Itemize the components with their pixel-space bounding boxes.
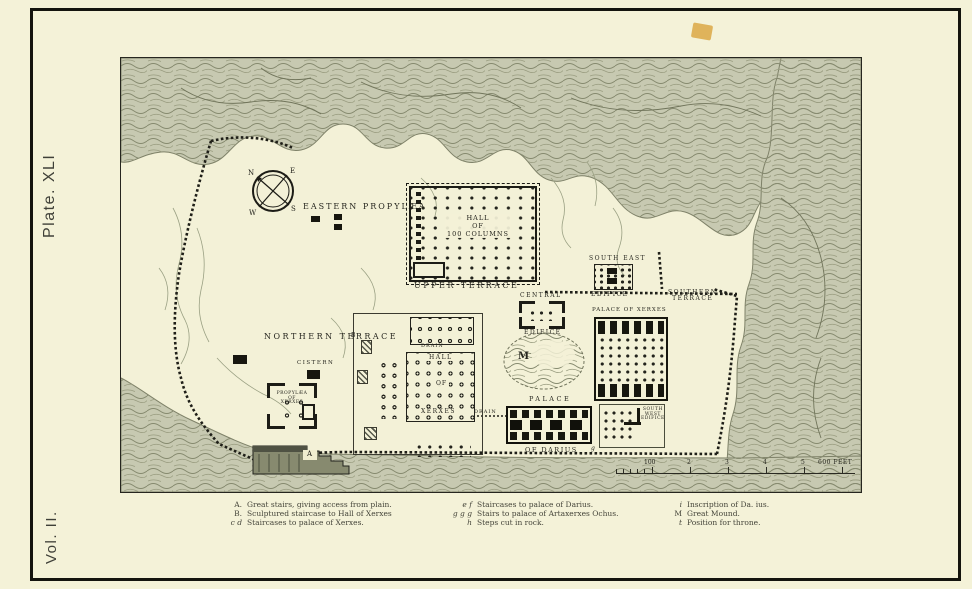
- legend-column-3: i Inscription of Da. ius. M Great Mound.…: [670, 500, 840, 527]
- propylaea-annex: [302, 404, 315, 420]
- south-east-edifice-label-bottom: EDIFICE: [591, 292, 629, 298]
- legend-column-1: A. Great stairs, giving access from plai…: [226, 500, 441, 527]
- plate-number-label: Plate. XLI: [42, 154, 59, 238]
- scale-end-label: 600 FEET: [818, 460, 852, 466]
- palace-of-xerxes: [594, 317, 668, 401]
- legend-key: M: [670, 509, 682, 518]
- legend-key: A.: [226, 500, 242, 509]
- stairs-a-letter: A: [307, 451, 312, 458]
- stairs-b-flight: [357, 370, 368, 384]
- legend-item: h Steps cut in rock.: [448, 518, 658, 527]
- stairs-g-letter: g: [591, 446, 595, 452]
- central-edifice-label-top: CENTRAL: [520, 293, 562, 299]
- palace-of-darius: [506, 406, 592, 444]
- central-edifice-columns: [528, 309, 556, 321]
- propylaea-of-xerxes: PROPYLÆA OF XERXES: [267, 383, 317, 429]
- upper-terrace-label: UPPER TERRACE: [414, 282, 519, 290]
- palace-room-band: [598, 384, 664, 397]
- west-edge-structure: [233, 355, 247, 364]
- hall-100-label: HALL OF 100 COLUMNS: [445, 214, 511, 238]
- compass-e: E: [290, 167, 295, 175]
- volume-label: Vol. II.: [44, 510, 60, 564]
- legend-text: Great Mound.: [687, 509, 740, 518]
- propylaea-pillar: [334, 224, 342, 230]
- legend-text: Staircases to palace of Xerxes.: [247, 518, 364, 527]
- drain-north-label: DRAIN: [421, 344, 444, 349]
- palace-of-xerxes-label: PALACE OF XERXES: [592, 308, 667, 314]
- southern-terrace-label: SOUTHERN TERRACE: [668, 290, 717, 303]
- darius-central-rooms: [510, 420, 588, 431]
- great-mound-label: M: [518, 352, 529, 363]
- scale-tick-label: 3: [725, 460, 729, 466]
- palace-room-band: [598, 321, 664, 334]
- hall-xerxes-label-1: HALL: [427, 355, 455, 361]
- legend-item: i Inscription of Da. ius.: [670, 500, 840, 509]
- legend-item: M Great Mound.: [670, 509, 840, 518]
- south-west-edifice: SOUTH WEST EDIFICE: [599, 404, 665, 448]
- legend-key: g g g: [448, 509, 472, 518]
- hall-xerxes-label-3: XERXES: [419, 409, 458, 415]
- legend-key: e f: [448, 500, 472, 509]
- legend-item: B. Sculptured staircase to Hall of Xerxe…: [226, 509, 441, 518]
- sw-columns: [602, 409, 636, 443]
- legend-key: t: [670, 518, 682, 527]
- compass-s: S: [291, 205, 296, 213]
- xerxes-north-portico: [410, 317, 474, 345]
- edifice-room: [607, 278, 617, 284]
- darius-room-band: [510, 432, 588, 440]
- xerxes-south-colonnade: [411, 440, 471, 457]
- legend-text: Great stairs, giving access from plain.: [247, 500, 392, 509]
- legend-key: i: [670, 500, 682, 509]
- legend-text: Position for throne.: [687, 518, 761, 527]
- south-west-edifice-label: SOUTH WEST EDIFICE: [641, 408, 665, 422]
- legend-item: e f Staircases to palace of Darius.: [448, 500, 658, 509]
- scale-bar: 100 2 3 4 5 600 FEET: [616, 460, 861, 476]
- hall-of-100-columns: HALL OF 100 COLUMNS: [409, 186, 537, 282]
- legend-text: Inscription of Da. ius.: [687, 500, 769, 509]
- cistern: [307, 370, 320, 379]
- central-edifice: [519, 301, 565, 329]
- scale-tick-label: 5: [801, 460, 805, 466]
- south-east-edifice: [594, 264, 633, 290]
- compass-w: W: [249, 209, 257, 217]
- scale-tick-label: 2: [687, 460, 691, 466]
- scale-tick-label: 4: [763, 460, 767, 466]
- palace-column-band: [598, 360, 664, 382]
- edifice-room: [607, 268, 617, 274]
- great-mound: [504, 333, 584, 389]
- compass-rose: N E S W: [245, 163, 301, 219]
- compass-n: N: [248, 169, 254, 177]
- sw-wall: [624, 422, 641, 425]
- stairs-b-flight: [361, 340, 372, 354]
- south-east-edifice-label-top: SOUTH EAST: [589, 256, 646, 262]
- scan-blemish: [691, 22, 713, 40]
- hall-of-xerxes: HALL OF XERXES: [406, 352, 475, 422]
- northern-terrace-label: NORTHERN TERRACE: [264, 333, 398, 341]
- legend-text: Stairs to palace of Artaxerxes Ochus.: [477, 509, 618, 518]
- legend-key: h: [448, 518, 472, 527]
- map-panel: N E S W EASTERN PROPYLÆA HALL OF 100 COL…: [120, 57, 862, 493]
- hall-xerxes-label-2: OF: [434, 381, 449, 387]
- legend-item: g g g Stairs to palace of Artaxerxes Och…: [448, 509, 658, 518]
- propylaea-pillar: [311, 216, 320, 222]
- hall-100-annex: [413, 262, 445, 278]
- legend-text: Staircases to palace of Darius.: [477, 500, 593, 509]
- palace-column-band: [598, 336, 664, 358]
- xerxes-west-portico: [375, 357, 399, 419]
- legend-key: B.: [226, 509, 242, 518]
- legend-item: c d Staircases to palace of Xerxes.: [226, 518, 441, 527]
- palace-of-darius-label-top: PALACE: [529, 396, 571, 403]
- propylaea-of-xerxes-label: PROPYLÆA OF XERXES: [273, 392, 311, 406]
- legend-text: Steps cut in rock.: [477, 518, 544, 527]
- central-edifice-label-bottom: EDIFICE: [524, 330, 562, 336]
- cistern-label: CISTERN: [297, 361, 334, 367]
- legend-text: Sculptured staircase to Hall of Xerxes: [247, 509, 392, 518]
- great-stairs: [249, 436, 353, 476]
- scale-tick-label: 100: [644, 460, 655, 466]
- legend-item: A. Great stairs, giving access from plai…: [226, 500, 441, 509]
- palace-of-darius-label-bottom: OF DARIUS: [525, 447, 578, 454]
- propylaea-pillar: [334, 214, 342, 220]
- stairs-b-flight: [364, 427, 377, 440]
- legend-key: c d: [226, 518, 242, 527]
- scanned-plate-page: Plate. XLI Vol. II.: [0, 0, 972, 589]
- legend-item: t Position for throne.: [670, 518, 840, 527]
- legend-column-2: e f Staircases to palace of Darius. g g …: [448, 500, 658, 527]
- darius-room-band: [510, 410, 588, 418]
